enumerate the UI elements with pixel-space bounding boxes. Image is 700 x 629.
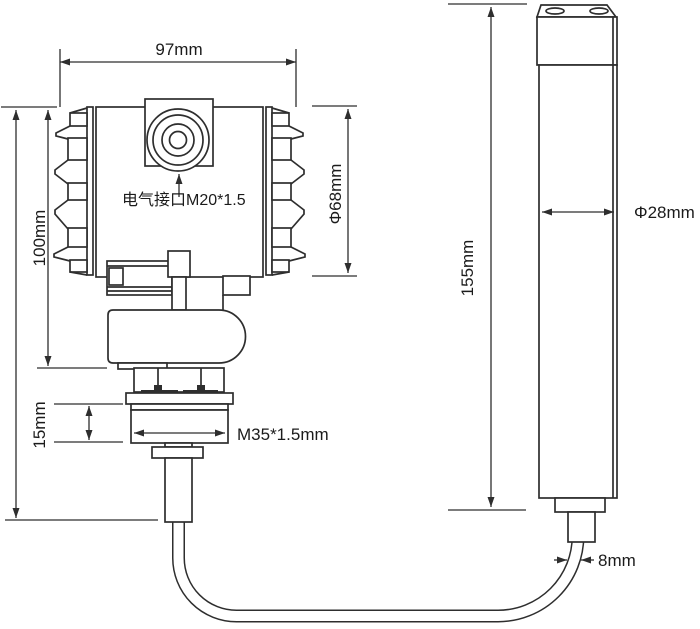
cable-core [179,512,579,616]
cable-diameter-label: 8mm [598,551,636,570]
probe-cap [537,17,617,65]
electrical-port-label: 电气接口M20*1.5 [122,191,246,209]
outlet-tube [165,458,192,522]
process-connection [126,368,233,522]
dimension-thread-length: 15mm [30,401,123,448]
thread-length-label: 15mm [30,401,49,448]
cable-outline [179,514,579,616]
right-block [223,276,250,295]
collar [152,447,203,458]
connection-cable [179,512,579,616]
housing-width-label: 97mm [155,40,202,59]
neck-column [172,277,186,310]
transmitter-dimension-drawing: 97mm 100mm Φ68mm 电气接口M20*1.5 15mm M35*1.… [0,0,700,629]
engineering-drawing-page: 97mm 100mm Φ68mm 电气接口M20*1.5 15mm M35*1.… [0,0,700,629]
housing-right-rib-panel [266,107,305,275]
center-block [168,251,190,277]
nut-section [134,368,224,392]
dimension-housing-width: 97mm [60,40,296,107]
probe-top-hole-right [590,8,608,14]
electrical-port-circles [147,109,209,171]
probe-diameter-label: Φ28mm [634,203,695,222]
sensor-capsule [108,310,245,363]
probe-cable-gland [568,512,595,542]
dimension-housing-diameter: Φ68mm [312,106,357,276]
thread-washer [131,404,228,410]
probe-body [539,65,617,498]
dimension-probe-length: 155mm [448,4,527,510]
housing-left-rib-panel [54,107,93,275]
flange-plate [126,393,233,404]
transmitter-assembly [54,99,305,522]
m35-thread-body [131,410,228,443]
probe-assembly [537,5,617,542]
probe-length-label: 155mm [458,240,477,297]
probe-top-hole-left [546,8,564,14]
probe-step [555,498,605,512]
housing-diameter-label: Φ68mm [326,164,345,225]
process-thread-label: M35*1.5mm [237,425,329,444]
housing-height-label: 100mm [30,210,49,267]
